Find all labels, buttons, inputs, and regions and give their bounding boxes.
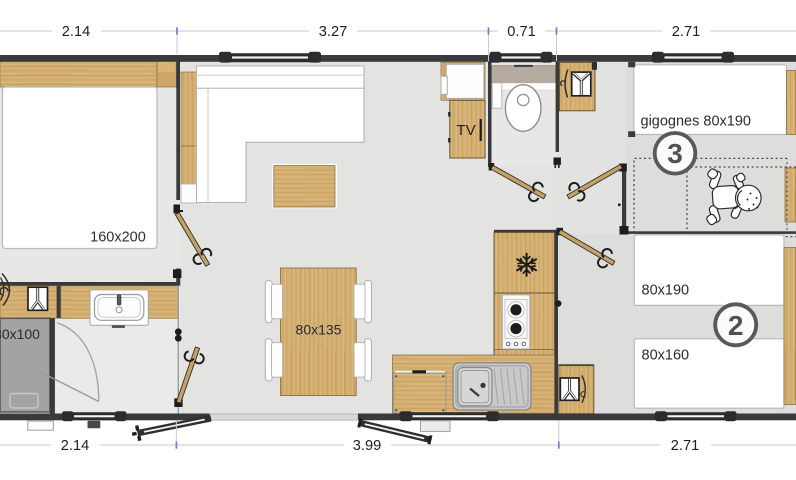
svg-text:gigognes 80x190: gigognes 80x190 xyxy=(641,114,751,130)
svg-text:2.71: 2.71 xyxy=(671,438,699,454)
svg-text:2: 2 xyxy=(728,310,744,341)
svg-text:3.99: 3.99 xyxy=(353,438,381,454)
svg-text:80x160: 80x160 xyxy=(642,348,690,364)
svg-text:0.71: 0.71 xyxy=(507,24,535,40)
svg-text:3: 3 xyxy=(667,138,683,169)
svg-text:80x135: 80x135 xyxy=(296,322,342,338)
svg-text:80x100: 80x100 xyxy=(0,326,40,342)
svg-text:3.27: 3.27 xyxy=(319,24,347,40)
svg-text:2.14: 2.14 xyxy=(61,438,89,454)
svg-text:2.71: 2.71 xyxy=(672,24,700,40)
svg-text:160x200: 160x200 xyxy=(90,230,146,246)
svg-text:80x190: 80x190 xyxy=(642,283,690,299)
svg-text:2.14: 2.14 xyxy=(62,24,90,40)
svg-text:TV: TV xyxy=(456,122,475,139)
